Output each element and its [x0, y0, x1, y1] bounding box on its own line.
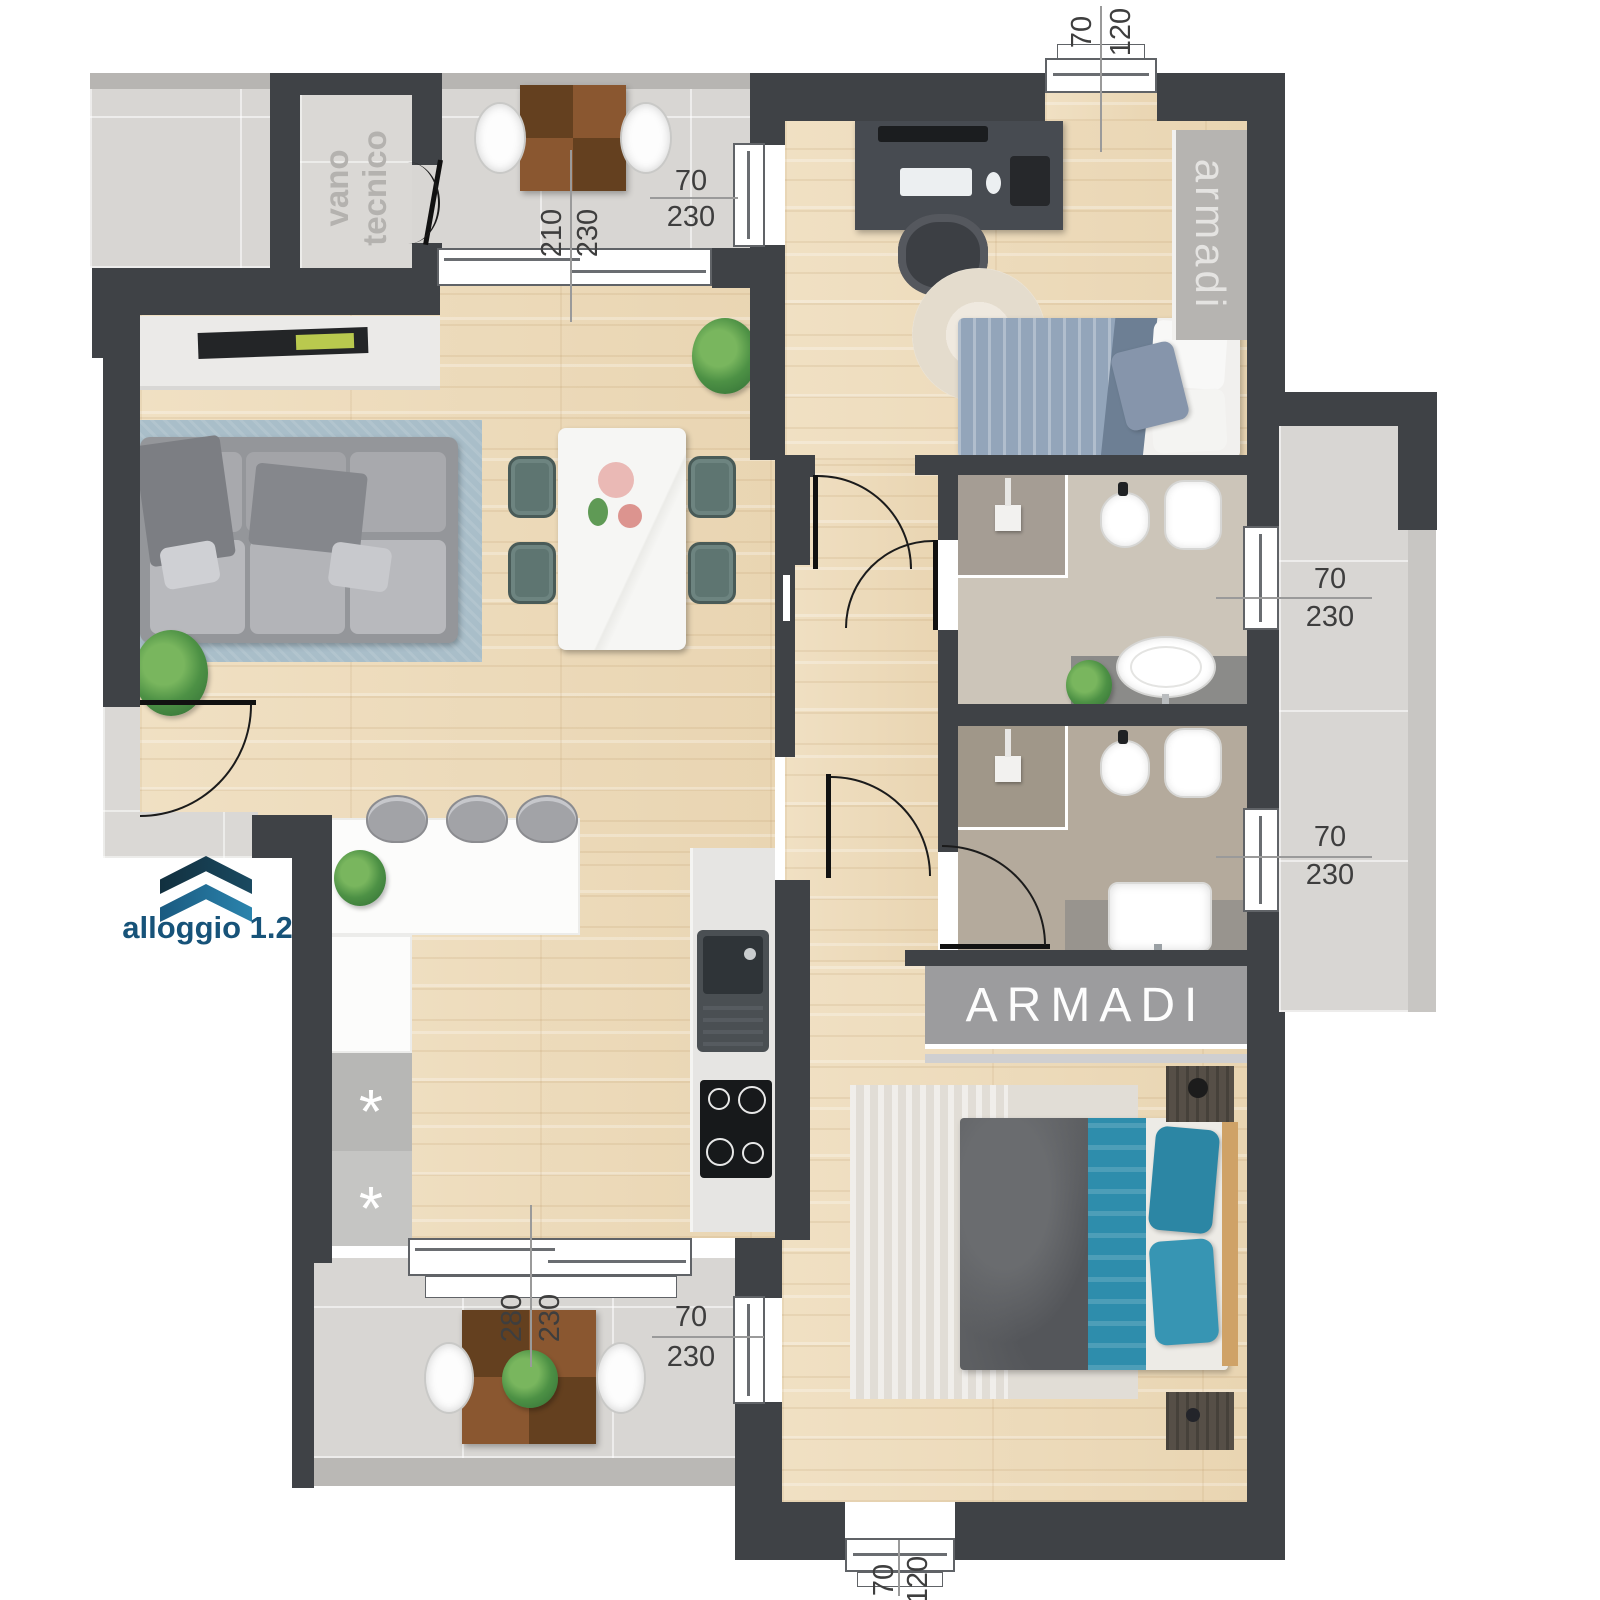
- unit-label: alloggio 1.2: [110, 908, 305, 948]
- table-greens: [588, 498, 608, 526]
- dim-sliding-living-h: 230: [573, 196, 603, 270]
- shower2-head: [995, 756, 1021, 782]
- bath1-basin-inner: [1130, 646, 1202, 688]
- plant: [1066, 660, 1112, 710]
- bidet-faucet: [1118, 482, 1128, 496]
- wardrobe-band: ARMADI: [925, 965, 1247, 1049]
- wall: [915, 455, 1247, 475]
- dim-bath2-w: 70: [1290, 822, 1370, 852]
- dining-chair: [688, 542, 736, 604]
- wall: [412, 73, 442, 165]
- nightstand-decor: [1186, 1408, 1200, 1422]
- wall: [1247, 912, 1279, 1012]
- bath1-door-leaf: [933, 540, 938, 630]
- terrace-right-edge: [1408, 530, 1436, 1012]
- wall: [270, 73, 300, 283]
- dim-bedroom1-side-w: 70: [650, 166, 732, 196]
- shower2-stem: [1005, 729, 1011, 757]
- bed-pillow-teal: [1148, 1238, 1219, 1346]
- wall-niche: [783, 575, 790, 621]
- wall: [735, 1502, 845, 1560]
- kitchen-sink-drainboard: [703, 1000, 763, 1046]
- window-pane: [747, 1304, 750, 1396]
- wall: [938, 704, 1247, 726]
- vano-tecnico-label: vano tecnico: [318, 113, 398, 263]
- sliding-door-kitchen: [408, 1238, 692, 1276]
- toilet: [1164, 480, 1222, 550]
- cooktop-burner: [742, 1142, 764, 1164]
- terrace-bottom-edge: [312, 1458, 742, 1486]
- nightstand: [1166, 1392, 1234, 1450]
- wall: [905, 950, 1247, 966]
- dimension-line: [1100, 6, 1102, 152]
- wall: [750, 245, 785, 290]
- dimension-line: [650, 197, 738, 199]
- bar-stool: [516, 795, 578, 843]
- nightstand-lamp: [1188, 1078, 1208, 1098]
- wall: [1398, 426, 1437, 530]
- bed-double-throw: [1088, 1118, 1146, 1370]
- sofa-pillow: [327, 541, 393, 593]
- dim-bedroom2-side-w: 70: [650, 1302, 732, 1332]
- wall: [938, 475, 958, 540]
- dim-window-top-w: 70: [1067, 7, 1097, 57]
- entry-gap: [103, 707, 140, 812]
- mouse: [986, 172, 1001, 194]
- cooktop-burner: [708, 1088, 730, 1110]
- dimension-line: [530, 1205, 532, 1367]
- laptop: [1010, 156, 1050, 206]
- shower1-stem: [1005, 478, 1011, 506]
- wall: [292, 1263, 314, 1488]
- sofa-throw-blanket: [248, 462, 368, 555]
- window-pane: [1259, 534, 1262, 622]
- dim-bedroom2-side-h: 230: [650, 1342, 732, 1374]
- dining-chair: [508, 456, 556, 518]
- kitchen-faucet: [744, 948, 756, 960]
- bidet: [1100, 740, 1150, 796]
- bath2-sink: [1108, 882, 1212, 952]
- wall: [750, 73, 1045, 121]
- terrace-right: [1279, 426, 1408, 1012]
- wall: [735, 1238, 782, 1298]
- wardrobe-strip-label: armadi: [1175, 120, 1245, 350]
- bar-stool: [446, 795, 508, 843]
- monitor: [878, 126, 988, 142]
- dimension-line: [652, 1336, 764, 1338]
- wall: [1247, 1012, 1285, 1502]
- dim-bath1-h: 230: [1290, 602, 1370, 634]
- keyboard: [900, 168, 972, 196]
- dim-window-bottom-w: 70: [869, 1555, 899, 1600]
- kitchen-sink-bowl: [703, 936, 763, 994]
- wall: [252, 815, 332, 858]
- shower1-head: [995, 505, 1021, 531]
- tv-screen-accent: [296, 333, 354, 350]
- wall: [1247, 426, 1279, 526]
- outdoor-chair: [474, 102, 526, 174]
- dim-window-bottom-h: 120: [903, 1551, 933, 1600]
- appliance-marker: *: [359, 1078, 383, 1147]
- table-plate: [598, 462, 634, 498]
- table-plate: [618, 504, 642, 528]
- window-pane: [548, 1260, 686, 1263]
- toilet: [1164, 728, 1222, 798]
- window-pane: [747, 151, 750, 239]
- outdoor-chair: [596, 1342, 646, 1414]
- wall: [750, 290, 785, 460]
- kitchen-appliance: *: [330, 1053, 412, 1151]
- wall: [955, 1502, 1285, 1560]
- wall: [775, 960, 810, 1240]
- wall: [775, 880, 810, 960]
- kitchen-counter-vertical: [330, 935, 412, 1053]
- wall: [1247, 73, 1285, 395]
- bar-stool: [366, 795, 428, 843]
- dim-sliding-kitchen-w: 280: [497, 1281, 527, 1355]
- wall: [938, 726, 958, 852]
- wall: [735, 1402, 782, 1502]
- appliance-marker: *: [359, 1175, 383, 1244]
- floor-plan: * * armadi ARMADI: [0, 0, 1600, 1600]
- dining-chair: [508, 542, 556, 604]
- dimension-line: [1216, 597, 1372, 599]
- entry-threshold: [103, 812, 258, 858]
- wall: [1247, 392, 1437, 426]
- bed-single-duvet: [958, 318, 1123, 458]
- outdoor-chair: [620, 102, 672, 174]
- wall: [785, 455, 815, 477]
- kitchen-appliance: *: [330, 1151, 412, 1246]
- cooktop-burner: [706, 1138, 734, 1166]
- wardrobe-band-shadow: [925, 1054, 1247, 1063]
- dim-sliding-kitchen-h: 230: [535, 1281, 565, 1355]
- dining-chair: [688, 456, 736, 518]
- dimension-line: [1216, 856, 1372, 858]
- dim-bath2-h: 230: [1290, 860, 1370, 892]
- wall: [1247, 630, 1279, 808]
- dim-bedroom1-side-h: 230: [650, 202, 732, 234]
- dim-sliding-living-w: 210: [537, 196, 567, 270]
- wall: [103, 268, 440, 315]
- bidet-faucet: [1118, 730, 1128, 744]
- bidet: [1100, 492, 1150, 548]
- plant: [692, 318, 758, 394]
- window-pane: [415, 1248, 555, 1251]
- wall: [750, 85, 785, 145]
- bed-frame-edge: [1222, 1122, 1238, 1366]
- cooktop-burner: [738, 1086, 766, 1114]
- dining-table: [558, 428, 686, 650]
- dim-bath1-w: 70: [1290, 564, 1370, 594]
- outdoor-chair: [424, 1342, 474, 1414]
- bed-pillow-teal: [1148, 1125, 1221, 1234]
- dim-window-top-h: 120: [1106, 3, 1136, 61]
- wall: [103, 315, 140, 707]
- outdoor-table: [520, 85, 626, 191]
- plant: [334, 850, 386, 906]
- window-pane: [572, 270, 706, 273]
- wall: [938, 630, 958, 704]
- window-pane: [1259, 816, 1262, 904]
